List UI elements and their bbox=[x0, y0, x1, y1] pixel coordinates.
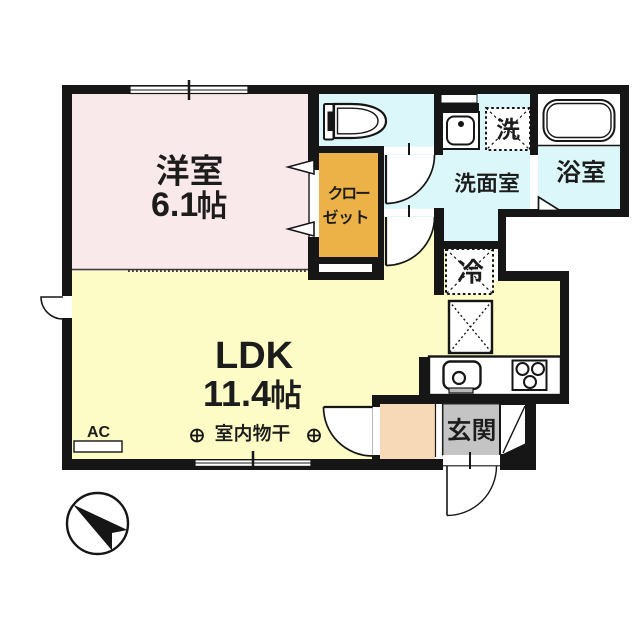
svg-text:11.4: 11.4 bbox=[203, 373, 271, 414]
svg-text:LDK: LDK bbox=[215, 335, 294, 377]
svg-text:6.1: 6.1 bbox=[151, 186, 198, 224]
svg-text:AC: AC bbox=[87, 424, 111, 441]
